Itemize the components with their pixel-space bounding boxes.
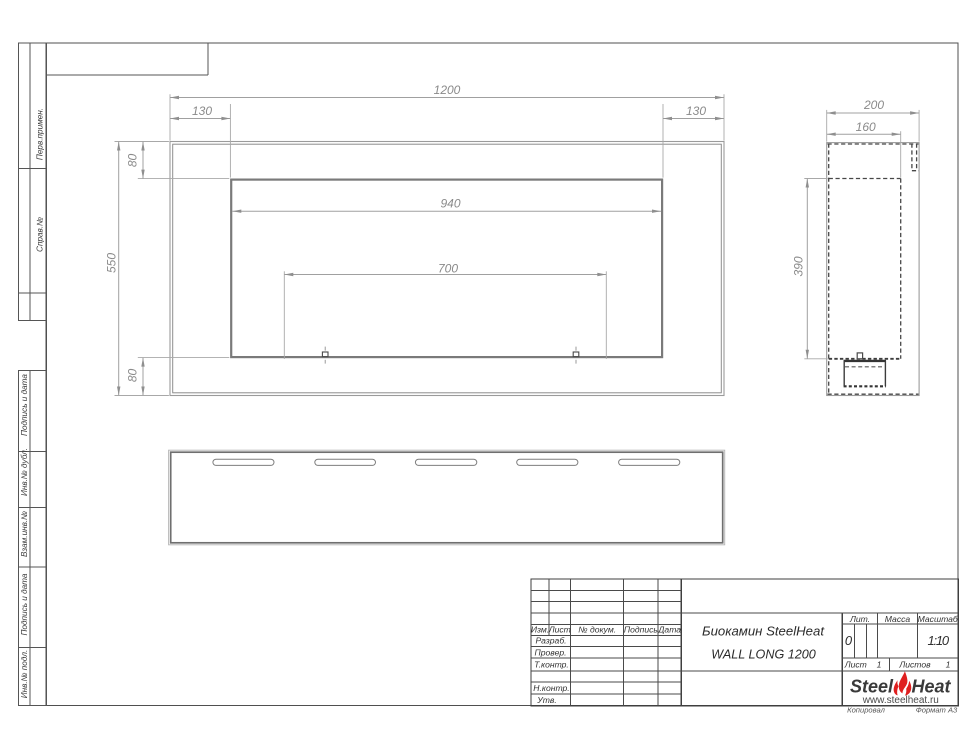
svg-text:Изм.: Изм. (531, 625, 549, 635)
svg-text:1:10: 1:10 (927, 633, 949, 648)
svg-text:Справ.№: Справ.№ (36, 217, 45, 252)
svg-text:Лист: Лист (844, 660, 867, 670)
svg-text:Листов: Листов (898, 660, 931, 670)
svg-text:1: 1 (877, 660, 882, 670)
svg-text:Формат А3: Формат А3 (916, 706, 958, 715)
svg-text:Т.контр.: Т.контр. (534, 659, 569, 669)
svg-text:WALL LONG 1200: WALL LONG 1200 (711, 647, 816, 661)
svg-text:Масса: Масса (885, 614, 911, 624)
svg-text:Лист: Лист (548, 625, 571, 635)
svg-text:700: 700 (438, 262, 458, 276)
svg-text:390: 390 (791, 256, 805, 276)
svg-text:Heat: Heat (912, 676, 952, 696)
svg-text:940: 940 (440, 197, 460, 211)
svg-text:Подпись: Подпись (624, 625, 659, 635)
svg-text:80: 80 (126, 369, 140, 383)
svg-text:Утв.: Утв. (536, 695, 557, 705)
svg-text:Дата: Дата (657, 625, 681, 635)
svg-text:Steel: Steel (850, 676, 894, 696)
svg-text:Провер.: Провер. (534, 647, 566, 657)
svg-text:130: 130 (686, 104, 706, 118)
svg-text:Перв.примен.: Перв.примен. (36, 108, 45, 160)
svg-text:130: 130 (192, 104, 212, 118)
svg-text:200: 200 (863, 98, 884, 112)
svg-text:80: 80 (126, 154, 140, 168)
svg-text:550: 550 (104, 253, 118, 273)
svg-text:Инв.№ подл.: Инв.№ подл. (20, 650, 29, 699)
svg-text:Копировал: Копировал (847, 706, 885, 715)
svg-text:1200: 1200 (434, 83, 461, 97)
svg-text:Лит.: Лит. (849, 614, 870, 624)
svg-text:160: 160 (856, 120, 876, 134)
svg-text:1: 1 (946, 660, 951, 670)
svg-text:Масштаб: Масштаб (918, 614, 959, 624)
svg-text:Подпись и дата: Подпись и дата (20, 374, 29, 436)
svg-text:Подпись и дата: Подпись и дата (20, 573, 29, 635)
svg-text:Взам.инв.№: Взам.инв.№ (20, 511, 29, 557)
svg-text:№ докум.: № докум. (578, 625, 616, 635)
svg-text:Инв.№ дубл.: Инв.№ дубл. (20, 448, 29, 496)
svg-text:Биокамин SteelHeat: Биокамин SteelHeat (702, 624, 825, 639)
svg-text:www.steelheat.ru: www.steelheat.ru (862, 695, 939, 706)
svg-text:0: 0 (845, 633, 853, 648)
svg-text:Разраб.: Разраб. (535, 636, 566, 646)
svg-text:Н.контр.: Н.контр. (533, 683, 569, 693)
